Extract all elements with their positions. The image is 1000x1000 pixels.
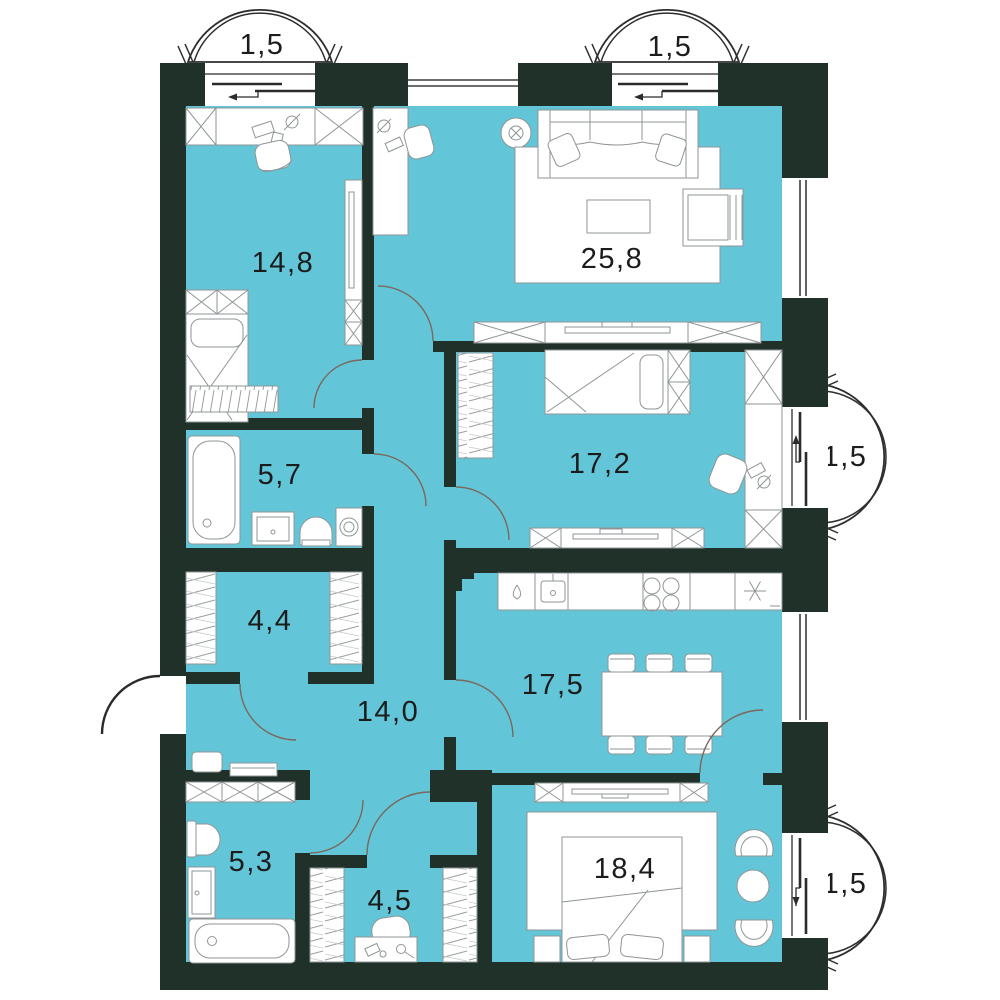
label-bath2: 5,3 — [229, 846, 274, 878]
label-kitchen: 17,5 — [522, 669, 584, 701]
balcony-right-middle: 1,5 — [818, 374, 886, 540]
window-top — [408, 63, 518, 106]
shoe-bench — [192, 752, 222, 772]
console — [230, 763, 277, 776]
balcony-door-right-bottom — [782, 833, 828, 938]
label-dressing: 4,5 — [368, 885, 413, 917]
balcony-top-left-label: 1,5 — [240, 29, 285, 61]
dining-table — [602, 654, 722, 754]
balcony-right-middle-label: 1,5 — [823, 441, 868, 473]
balcony-top-right: 1,5 — [585, 10, 749, 64]
rug — [190, 386, 278, 412]
mirror-shelf — [345, 180, 362, 345]
balcony-top-right-label: 1,5 — [648, 31, 693, 63]
single-bed — [545, 350, 690, 414]
tv-stand — [474, 322, 761, 343]
window-living — [782, 178, 828, 298]
label-bedroom3: 18,4 — [594, 853, 656, 885]
desk — [373, 108, 408, 235]
washbasin — [188, 867, 215, 918]
bathtub — [189, 919, 295, 963]
tv-stand — [530, 528, 704, 548]
label-bedroom2: 17,2 — [569, 448, 631, 480]
balcony-top-left: 1,5 — [178, 10, 342, 64]
label-bedroom1: 14,8 — [252, 247, 314, 279]
label-storage: 4,4 — [248, 605, 293, 637]
vanity-table — [355, 937, 417, 962]
coffee-table — [587, 200, 650, 233]
window-kitchen — [782, 612, 828, 722]
washing-machine — [336, 508, 362, 546]
side-table — [737, 870, 769, 902]
floor-plan: 1,5 1,5 1,5 1,5 — [0, 0, 1000, 1000]
toilet — [300, 517, 332, 546]
clothes-rack — [458, 353, 493, 458]
balcony-right-bottom-label: 1,5 — [823, 868, 868, 900]
balcony-door-right-middle — [782, 407, 828, 508]
tv-stand — [535, 783, 708, 802]
sofa — [538, 110, 698, 178]
balcony-door-top-right — [612, 63, 718, 106]
wardrobe — [186, 782, 295, 802]
label-living: 25,8 — [581, 243, 643, 275]
wardrobe-column — [745, 350, 782, 548]
washbasin — [252, 512, 294, 545]
armchair — [683, 189, 743, 246]
ceiling-light-icon — [501, 118, 531, 148]
bathtub — [188, 436, 240, 544]
entrance-door — [102, 676, 186, 734]
label-bath1: 5,7 — [258, 459, 303, 491]
balcony-right-bottom: 1,5 — [818, 805, 886, 971]
label-hall: 14,0 — [357, 696, 419, 728]
balcony-door-top-left — [205, 63, 315, 106]
